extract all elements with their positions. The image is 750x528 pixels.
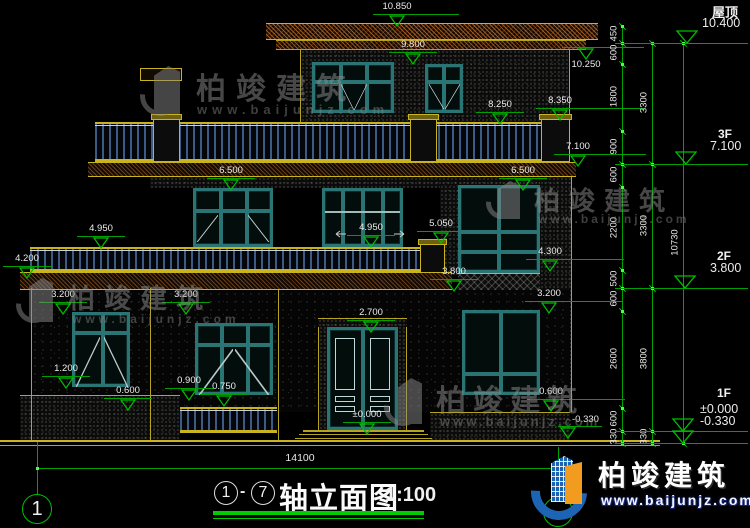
roof-level: 10.400 bbox=[702, 16, 740, 30]
dim-tick bbox=[36, 467, 39, 470]
title-underline bbox=[213, 511, 424, 515]
watermark-url: www.baijunjz.com bbox=[72, 312, 240, 326]
legend-triangle bbox=[676, 30, 698, 44]
legend-triangle bbox=[675, 151, 697, 165]
title-dash: - bbox=[240, 483, 245, 501]
dim-chain-line bbox=[652, 43, 653, 443]
floor-1f-level-bottom: -0.330 bbox=[700, 414, 735, 428]
floor-2f-level: 3.800 bbox=[710, 261, 741, 275]
floor-3f-level: 7.100 bbox=[710, 139, 741, 153]
dim-tick-dot bbox=[621, 63, 624, 66]
logo-building-icon bbox=[565, 462, 582, 504]
watermark-url: www.baijunjz.com bbox=[197, 102, 389, 117]
floor-1f-label: 1F bbox=[717, 386, 731, 400]
logo-brand-text: 柏竣建筑 bbox=[598, 454, 730, 494]
dim-chain-line bbox=[683, 43, 684, 443]
watermark-url: www.baijunjz.com bbox=[440, 414, 600, 429]
watermark: 柏竣建筑 www.baijunjz.com bbox=[140, 62, 400, 122]
elevation-drawing-canvas: 10.8509.80010.2508.2508.3507.1006.5006.5… bbox=[0, 0, 750, 528]
dim-tick-dot bbox=[621, 310, 624, 313]
legend-triangle bbox=[672, 430, 694, 444]
dim-tick-dot bbox=[621, 269, 624, 272]
title-axis-from: 1 bbox=[214, 481, 238, 505]
watermark: 柏竣建筑 www.baijunjz.com bbox=[384, 374, 644, 434]
title-underline-2 bbox=[213, 518, 424, 519]
brand-logo: 柏竣建筑 www.baijunjz.com bbox=[525, 448, 750, 526]
dim-tick-dot bbox=[621, 130, 624, 133]
watermark: 柏竣建筑 www.baijunjz.com bbox=[486, 181, 736, 231]
dim-value: 600 bbox=[609, 269, 620, 329]
title-axis-to: 7 bbox=[251, 481, 275, 505]
logo-url-text: www.baijunjz.com bbox=[601, 492, 750, 508]
overall-width-dim: 14100 bbox=[270, 453, 330, 464]
watermark: 柏竣建筑 www.baijunjz.com bbox=[16, 275, 266, 331]
overall-dim-line bbox=[37, 468, 559, 469]
title-scale: 1:100 bbox=[385, 484, 436, 507]
dim-tick-dot bbox=[621, 25, 624, 28]
watermark-url: www.baijunjz.com bbox=[538, 212, 690, 226]
watermark-brand: 柏竣建筑 bbox=[68, 277, 212, 316]
dim-value: 3300 bbox=[639, 73, 650, 133]
drawing-title-group: 1 - 7 轴立面图 1:100 bbox=[205, 475, 435, 523]
legend-triangle bbox=[674, 275, 696, 289]
axis-bubble-1: 1 bbox=[22, 494, 52, 524]
